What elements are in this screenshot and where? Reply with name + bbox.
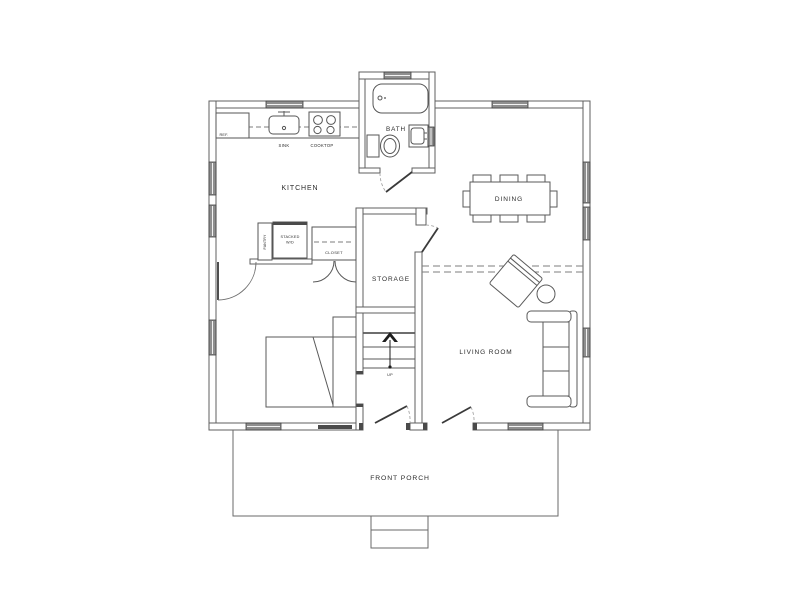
window-bath-top	[384, 72, 411, 79]
sofa	[527, 311, 577, 407]
up-arrow-icon	[382, 332, 398, 369]
front-door-living	[442, 407, 471, 423]
storage-label: STORAGE	[372, 276, 410, 283]
kitchen-sink	[269, 111, 299, 134]
hall-dining-door	[422, 225, 438, 252]
front-doors	[375, 406, 474, 423]
stacked-wd-label-2: W/D	[286, 241, 294, 245]
pantry-label: PANTRY	[263, 234, 267, 250]
sink-label: SINK	[279, 143, 290, 148]
kitchen-label: KITCHEN	[281, 185, 318, 192]
front-door-entry	[375, 406, 407, 423]
chair	[527, 175, 545, 182]
chair	[473, 215, 491, 222]
chair	[463, 191, 470, 207]
chair	[473, 175, 491, 182]
window-kitchen-top	[266, 101, 303, 108]
living-room-label: LIVING ROOM	[459, 349, 512, 356]
window-bedroom-left	[209, 320, 216, 355]
kitchen-area: REF. SINK COOKTOP KITCHEN	[216, 111, 359, 192]
tub-faucet	[378, 96, 382, 100]
nightstand	[333, 317, 356, 337]
window-bedroom-bottom	[246, 423, 281, 430]
window-dining-top	[492, 101, 528, 108]
chair	[550, 191, 557, 207]
dining-area: DINING	[463, 175, 557, 222]
window-bath-right	[428, 127, 434, 146]
floor-plan-canvas: REF. SINK COOKTOP KITCHEN BATH	[0, 0, 792, 612]
storage-area: STORAGE	[372, 276, 410, 283]
dining-label: DINING	[495, 196, 523, 203]
cooktop	[309, 112, 340, 136]
chair	[500, 215, 518, 222]
chair	[500, 175, 518, 182]
bedroom-area	[218, 262, 356, 407]
bath-area: BATH	[367, 84, 434, 192]
window-dining-right-1	[583, 162, 590, 203]
floor-plan-drawing: REF. SINK COOKTOP KITCHEN BATH	[0, 0, 792, 612]
porch-steps	[371, 516, 428, 548]
closet-door-left	[313, 261, 334, 282]
bath-sink	[409, 125, 428, 147]
closet-label: CLOSET	[325, 250, 343, 255]
ref-label: REF.	[219, 133, 228, 137]
up-label: UP	[387, 373, 393, 377]
toilet	[367, 135, 400, 157]
porch-area: FRONT PORCH	[233, 430, 558, 548]
stacked-wd-label-1: STACKED	[280, 235, 299, 239]
round-side-table	[537, 285, 555, 303]
closet: CLOSET	[312, 227, 356, 282]
window-dining-right-2	[583, 207, 590, 240]
bed	[266, 317, 356, 407]
armchair	[489, 254, 543, 308]
pantry-block: PANTRY STACKED W/D CLOSET	[258, 222, 356, 282]
stairs: UP	[363, 332, 415, 377]
living-area: LIVING ROOM	[422, 254, 583, 407]
window-kitchen-left-1	[209, 162, 216, 195]
bath-label: BATH	[386, 126, 406, 133]
chair	[527, 215, 545, 222]
front-porch-label: FRONT PORCH	[370, 475, 430, 482]
window-kitchen-left-2	[209, 205, 216, 237]
closet-door-right	[335, 261, 356, 282]
cooktop-label: COOKTOP	[311, 143, 334, 148]
window-living-right	[583, 328, 590, 357]
window-living-bottom	[508, 423, 543, 430]
bath-door	[386, 172, 412, 192]
